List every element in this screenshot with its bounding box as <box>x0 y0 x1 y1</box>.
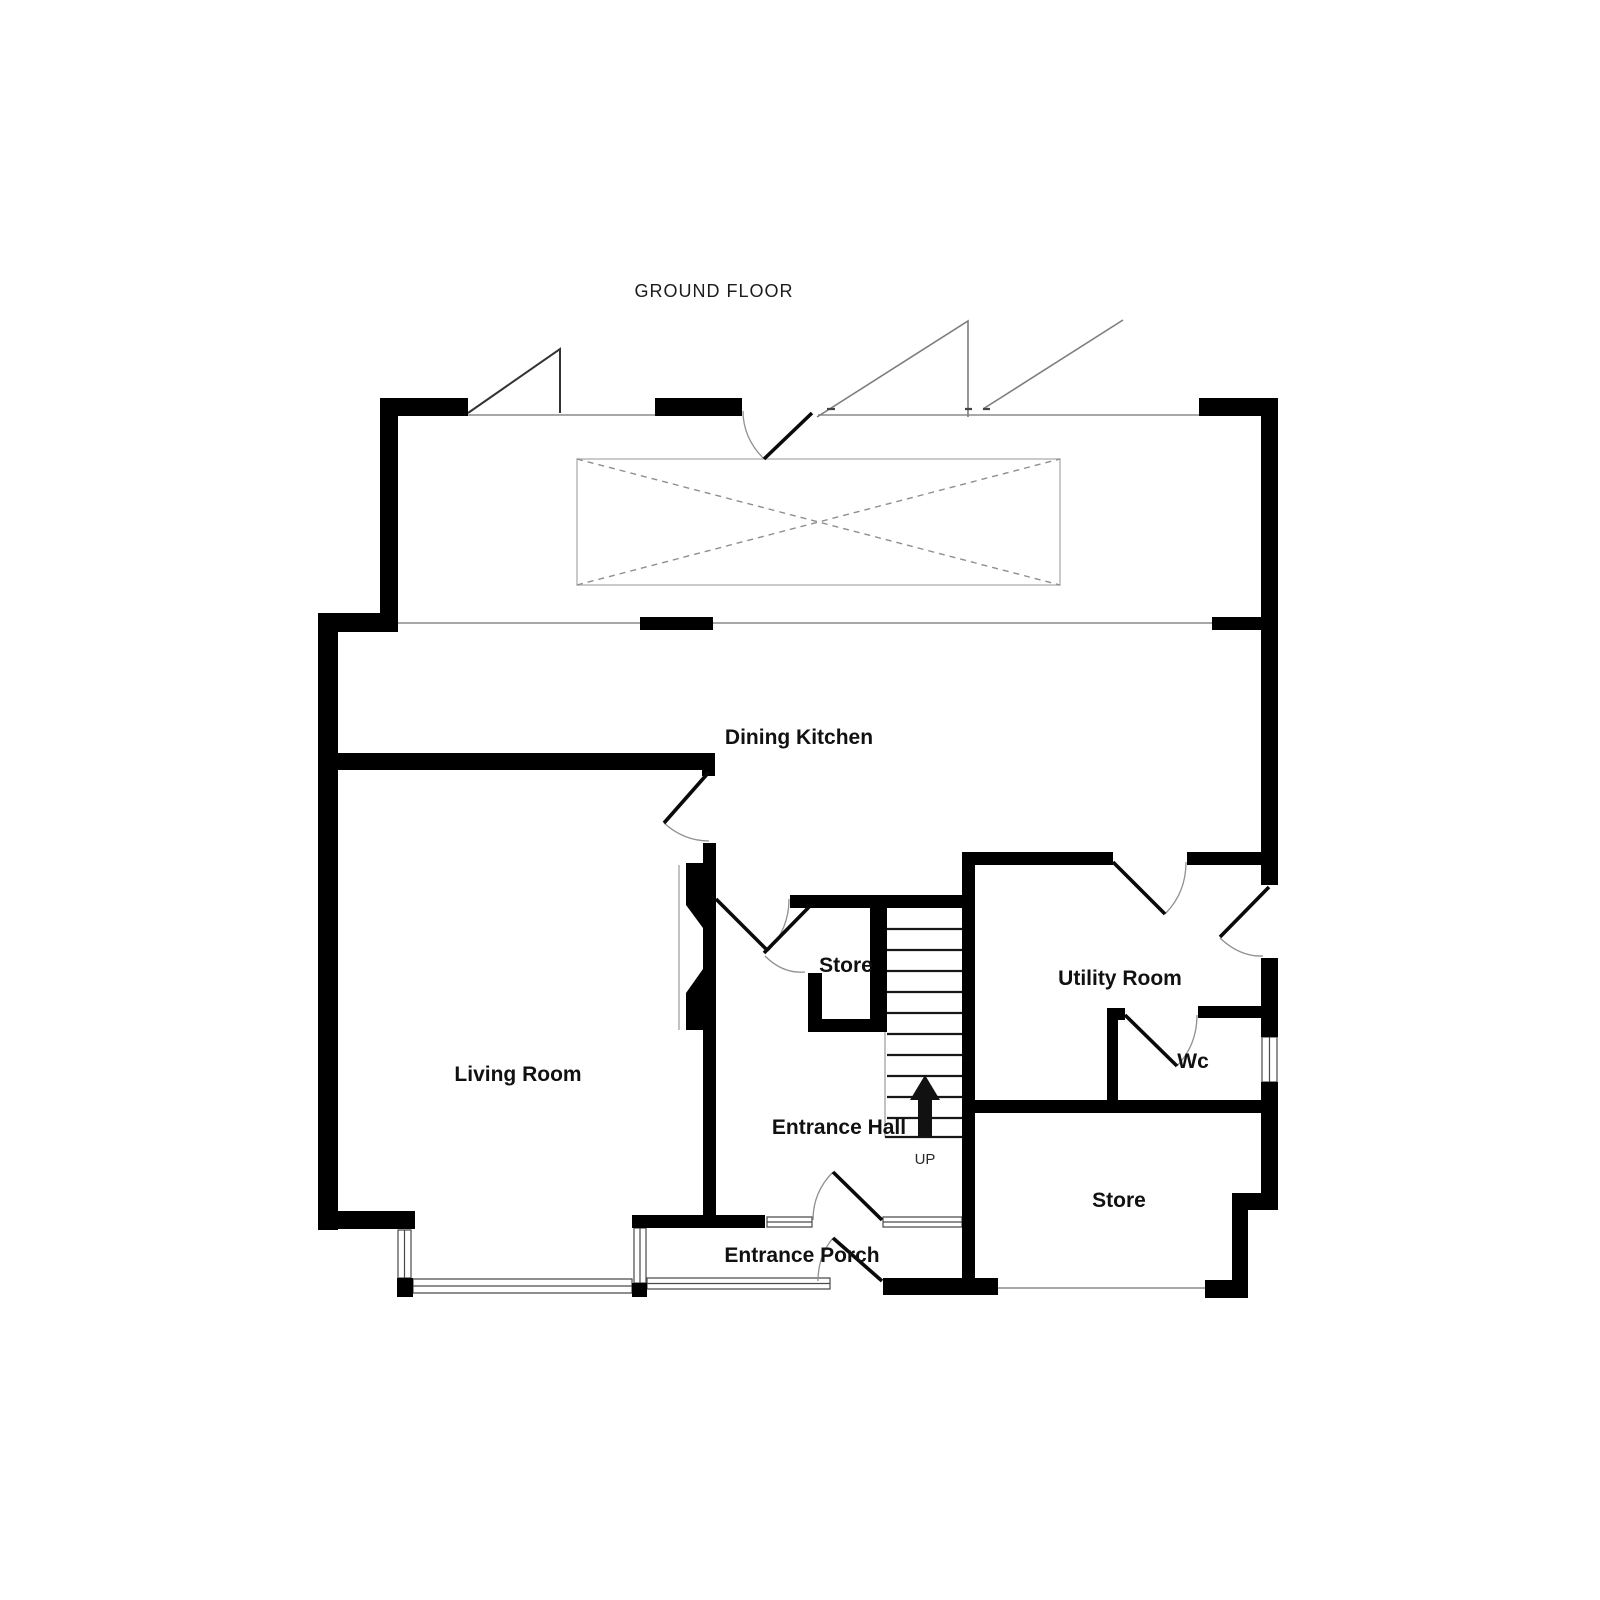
floorplan-page: UP GROUND FLOOR Dining Kitchen Living Ro… <box>0 0 1600 1600</box>
up-label: UP <box>915 1151 936 1168</box>
room-label-dining-kitchen: Dining Kitchen <box>725 726 873 749</box>
up-arrow-head <box>910 1075 940 1100</box>
room-label-entrance-porch: Entrance Porch <box>724 1244 879 1267</box>
room-label-entrance-hall: Entrance Hall <box>772 1116 906 1139</box>
room-label-hall-store: Store <box>819 954 873 977</box>
room-label-utility-room: Utility Room <box>1058 967 1182 990</box>
up-arrow-stem <box>918 1095 932 1137</box>
folding-window-symbol <box>468 349 560 413</box>
sliding-door-symbol <box>817 320 1123 417</box>
room-label-living-room: Living Room <box>454 1063 581 1086</box>
room-label-rear-store: Store <box>1092 1189 1146 1212</box>
room-regions <box>338 416 1261 1278</box>
room-label-wc: Wc <box>1177 1050 1209 1073</box>
floor-title: GROUND FLOOR <box>634 281 793 301</box>
floorplan-svg: UP GROUND FLOOR Dining Kitchen Living Ro… <box>0 0 1600 1600</box>
room-region-living-room <box>338 770 703 1211</box>
room-region-open-plan-top <box>398 416 1261 617</box>
